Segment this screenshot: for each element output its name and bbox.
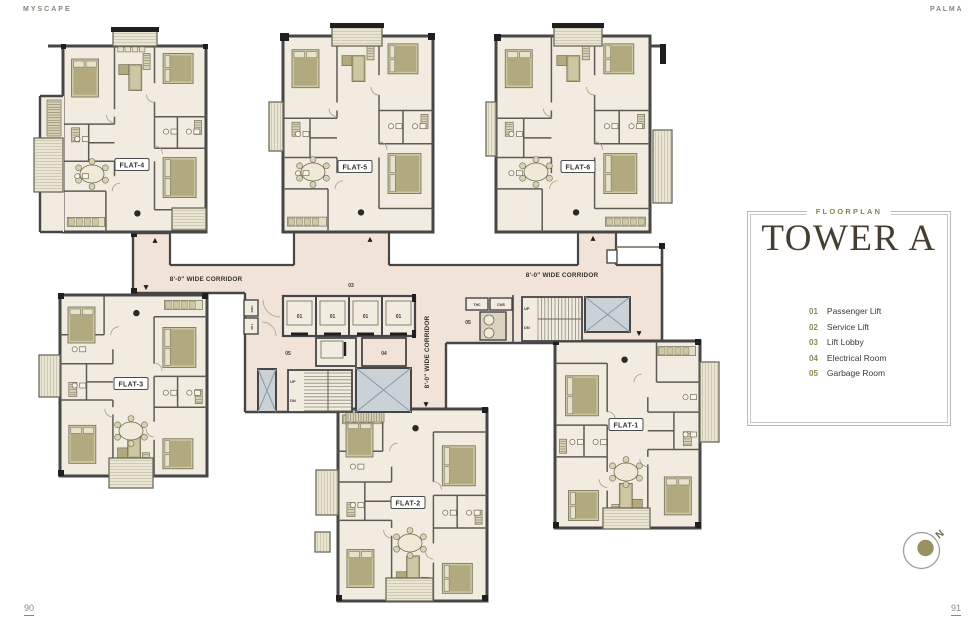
svg-text:8'-0" WIDE CORRIDOR: 8'-0" WIDE CORRIDOR xyxy=(526,272,599,279)
svg-text:FLAT-2: FLAT-2 xyxy=(395,500,420,507)
svg-text:UP: UP xyxy=(290,379,296,384)
svg-text:04: 04 xyxy=(381,351,387,357)
svg-text:05: 05 xyxy=(285,351,291,357)
svg-text:FLAT-6: FLAT-6 xyxy=(565,164,590,171)
svg-text:05: 05 xyxy=(465,320,471,326)
svg-text:01: 01 xyxy=(396,314,402,320)
svg-text:UP: UP xyxy=(524,306,530,311)
svg-text:THC: THC xyxy=(250,324,254,331)
svg-text:FLAT-4: FLAT-4 xyxy=(119,162,144,169)
svg-text:8'-0" WIDE CORRIDOR: 8'-0" WIDE CORRIDOR xyxy=(170,276,243,283)
svg-text:FLAT-5: FLAT-5 xyxy=(342,164,367,171)
svg-text:03: 03 xyxy=(348,283,354,289)
svg-text:DN: DN xyxy=(290,398,296,403)
svg-text:CWS: CWS xyxy=(250,306,254,313)
svg-text:8'-0" WIDE CORRIDOR: 8'-0" WIDE CORRIDOR xyxy=(424,316,431,389)
svg-text:01: 01 xyxy=(330,314,336,320)
svg-text:FLAT-1: FLAT-1 xyxy=(613,422,638,429)
svg-text:THC: THC xyxy=(474,303,482,307)
svg-text:01: 01 xyxy=(363,314,369,320)
svg-text:01: 01 xyxy=(297,314,303,320)
svg-text:CWS: CWS xyxy=(497,303,506,307)
svg-text:FLAT-3: FLAT-3 xyxy=(118,381,143,388)
svg-text:DN: DN xyxy=(524,325,530,330)
